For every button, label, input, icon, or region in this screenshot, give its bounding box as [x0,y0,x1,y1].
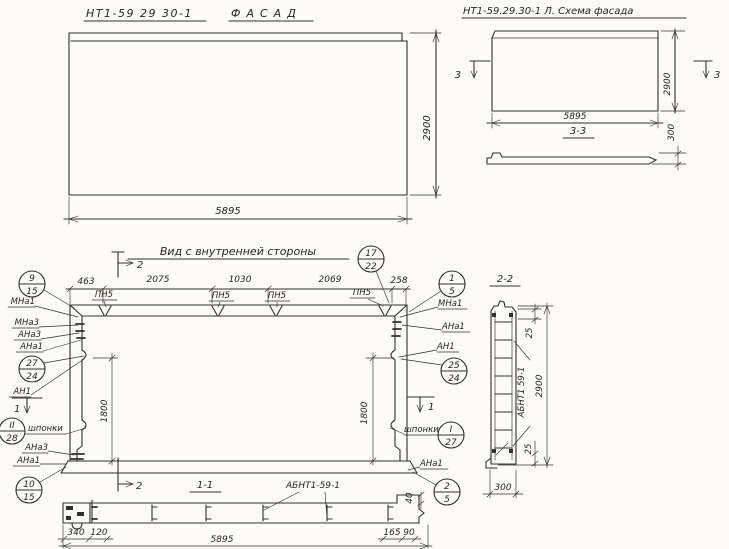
callout-10-15: 10 15 [16,467,66,503]
label-ana1-right: АНа1 [402,322,470,332]
scheme-cut-marker-left: 3 [455,61,490,81]
section22-dim-width: 300 [483,470,523,498]
label-mna3-left: МНа3 [12,318,78,328]
label-shponki-left: шпонки [28,424,63,434]
pn5-label-3: ПН5 [268,291,286,301]
scheme-width-value: 5895 [564,112,587,122]
label-ana1-left: АНа1 [16,340,81,352]
label-mna1-right: МНа1 [400,299,467,317]
dim-5895-bottom: 5895 [211,535,234,545]
dim-258: 258 [390,276,407,286]
inner-side-dimension-left: 1800 [93,353,118,465]
svg-text:10: 10 [23,480,35,490]
svg-text:1: 1 [449,274,455,284]
svg-text:28: 28 [6,434,18,444]
svg-text:25: 25 [448,361,460,371]
section22-dim-25-top: 25 [518,304,541,338]
inner-view: Вид с внутренней стороны 2 2 463 2075 10… [0,245,470,505]
section-2-2: 2-2 АБНТ1 59-1 25 [483,274,553,498]
scheme-cut-marker-right: 3 [694,61,720,81]
svg-text:22: 22 [365,262,377,272]
dim-90: 90 [403,528,415,538]
cut1-label-right: 1 [428,402,434,413]
cut1-marker-right: 1 [407,397,434,413]
callout-II-28: II 28 шпонки [0,418,86,444]
callout-27-24: 27 24 [19,356,84,382]
cut1-marker-left: 1 [12,398,42,415]
facade-view: НТ1-59 29 30-1 ФАСАД 5895 2900 [64,7,441,224]
cut2-marker-top: 2 [112,252,143,277]
section11-part-label: АБНТ1-59-1 [285,481,340,491]
dim-300: 300 [494,483,511,493]
label-ana1-bottom-left: АНа1 [13,456,66,466]
svg-text:I: I [450,425,453,435]
drawing-canvas: НТ1-59 29 30-1 ФАСАД 5895 2900 НТ1-59.29… [0,0,729,549]
svg-text:5: 5 [449,287,455,297]
cut2-label-bottom: 2 [136,481,142,492]
svg-text:25: 25 [525,328,535,339]
pn5-labels: ПН5 ПН5 ПН5 ПН5 [92,288,383,307]
svg-text:24: 24 [448,374,460,384]
dim-1800-left: 1800 [100,399,110,422]
svg-text:17: 17 [365,249,377,259]
svg-text:МНа1: МНа1 [438,299,462,309]
scheme-title: НТ1-59.29.30-1 Л. Схема фасада [463,6,633,17]
scheme-cut-label-right: 3 [714,70,720,81]
facade-width-value: 5895 [215,206,240,217]
dim-2900-section: 2900 [535,374,545,397]
blueprint-page: НТ1-59 29 30-1 ФАСАД 5895 2900 НТ1-59.29… [0,0,729,549]
section11-strip [63,495,424,529]
callout-25-24: 25 24 [401,358,467,384]
pn5-label-1: ПН5 [95,290,113,300]
inner-side-dimension-right: 1800 [360,353,394,465]
facade-title: ФАСАД [231,7,302,20]
svg-text:АНа3: АНа3 [24,443,48,453]
part-leader-1 [264,492,299,510]
svg-text:АНа1: АНа1 [441,322,465,332]
section22-dim-25-bottom: 25 [524,441,538,467]
facade-panel-outline [69,33,407,195]
section22-title: 2-2 [497,274,513,285]
cut1-label-left: 1 [14,404,20,415]
label-ana1-bottom-right: АНа1 [408,459,448,470]
section22-column [486,301,516,468]
scheme-view: НТ1-59.29.30-1 Л. Схема фасада 3 3 2900 [455,6,721,170]
callout-I-27: I 27 шпонки [390,422,464,448]
facade-code: НТ1-59 29 30-1 [86,7,193,20]
callout-2-5: 2 5 [413,472,460,505]
facade-height-dimension: 2900 [410,30,441,198]
svg-text:27: 27 [26,359,38,369]
svg-text:АНа3: АНа3 [17,330,41,340]
label-mna1-left: МНа1 [8,297,78,317]
scheme-height-dimension: 2900 [661,29,685,113]
svg-text:25: 25 [524,444,534,455]
scheme-thickness-dimension: 300 [652,124,686,170]
svg-text:9: 9 [29,274,35,284]
svg-text:АНа1: АНа1 [19,342,43,352]
label-ana3-bottom-left: АНа3 [22,443,74,455]
dim-2075: 2075 [147,275,170,285]
dim-463: 463 [77,277,94,287]
label-ana3-left: АНа3 [14,330,79,340]
dim-1800-right: 1800 [360,401,370,424]
dim-340: 340 [67,528,84,538]
svg-text:АНа1: АНа1 [419,459,443,469]
section22-part-label: АБНТ1 59-1 [517,367,527,419]
svg-text:МНа3: МНа3 [15,318,39,328]
svg-text:АН1: АН1 [12,387,31,397]
svg-text:24: 24 [26,372,38,382]
svg-text:15: 15 [23,493,35,503]
svg-text:27: 27 [445,438,457,448]
section11-title: 1-1 [197,480,213,491]
svg-text:II: II [9,421,15,431]
dim-120: 120 [90,528,107,538]
svg-text:15: 15 [26,287,38,297]
svg-text:АНа1: АНа1 [16,456,40,466]
dim-40: 40 [405,492,415,504]
scheme-thickness-value: 300 [667,124,677,141]
svg-text:АН1: АН1 [436,342,455,352]
scheme-panel-outline [492,31,658,111]
dim-165: 165 [383,528,400,538]
svg-text:МНа1: МНа1 [11,297,35,307]
facade-height-value: 2900 [422,115,433,140]
scheme-section-title: 3-3 [570,126,586,137]
section-1-1: 1-1 АБНТ1-59-1 340 120 [58,480,432,549]
scheme-cut-label-left: 3 [455,70,461,81]
label-an1-right: АН1 [399,342,459,357]
svg-text:2: 2 [444,482,450,492]
scheme-height-value: 2900 [663,72,673,95]
scheme-section-strip [487,153,656,164]
dim-2069: 2069 [319,275,342,285]
pn5-label-4: ПН5 [353,288,371,298]
inner-panel-outline [61,305,417,473]
cut2-label-top: 2 [137,260,143,271]
cut2-marker-bottom: 2 [118,458,142,492]
pn5-label-2: ПН5 [212,291,230,301]
facade-width-dimension: 5895 [64,197,412,224]
inner-title: Вид с внутренней стороны [160,245,317,258]
label-shponki-right: шпонки [404,425,439,435]
svg-text:5: 5 [444,495,450,505]
section11-dimensions: 340 120 165 90 40 5895 [58,492,432,549]
dim-1030: 1030 [229,275,252,285]
